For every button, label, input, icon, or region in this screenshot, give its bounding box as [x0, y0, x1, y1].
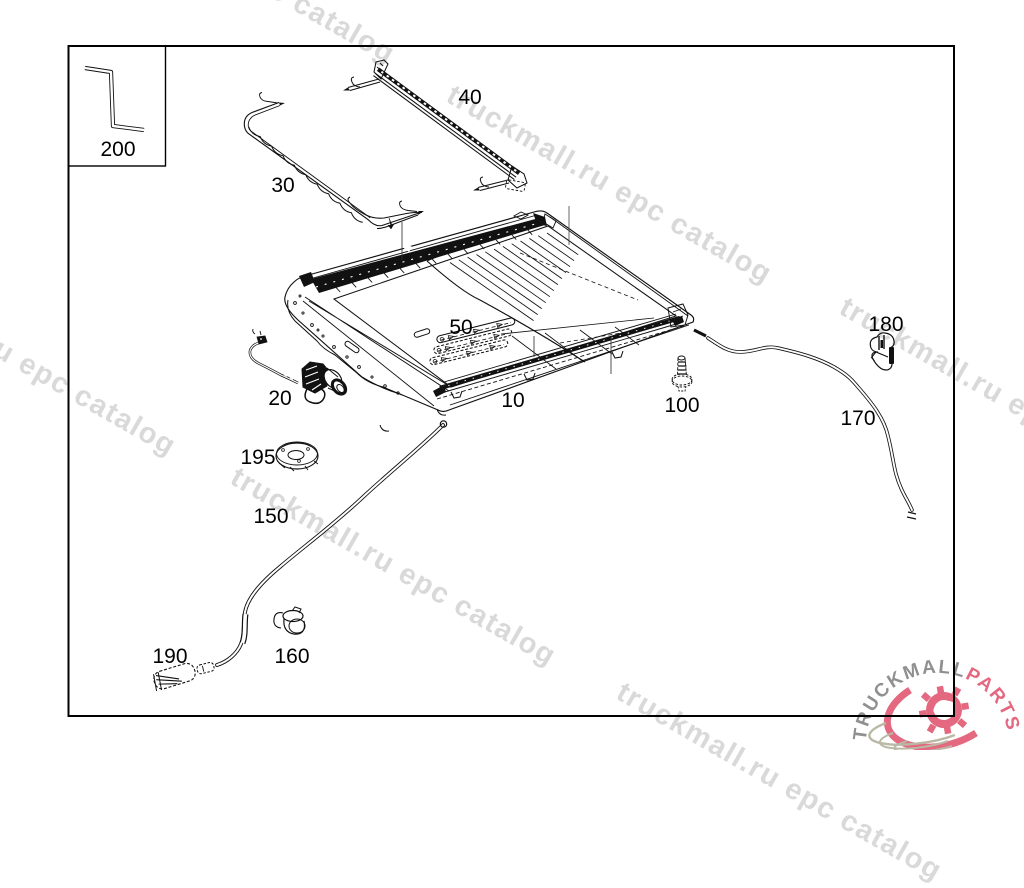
svg-text:160: 160 — [274, 645, 309, 668]
svg-text:150: 150 — [253, 505, 288, 528]
svg-text:50: 50 — [449, 316, 472, 339]
svg-text:190: 190 — [152, 645, 187, 668]
svg-text:195: 195 — [240, 446, 275, 469]
svg-text:20: 20 — [268, 387, 291, 410]
svg-text:200: 200 — [100, 138, 135, 161]
svg-text:40: 40 — [458, 86, 481, 109]
svg-text:180: 180 — [868, 313, 903, 336]
svg-text:10: 10 — [501, 389, 524, 412]
svg-text:170: 170 — [840, 407, 875, 430]
svg-text:30: 30 — [271, 174, 294, 197]
svg-text:100: 100 — [664, 394, 699, 417]
